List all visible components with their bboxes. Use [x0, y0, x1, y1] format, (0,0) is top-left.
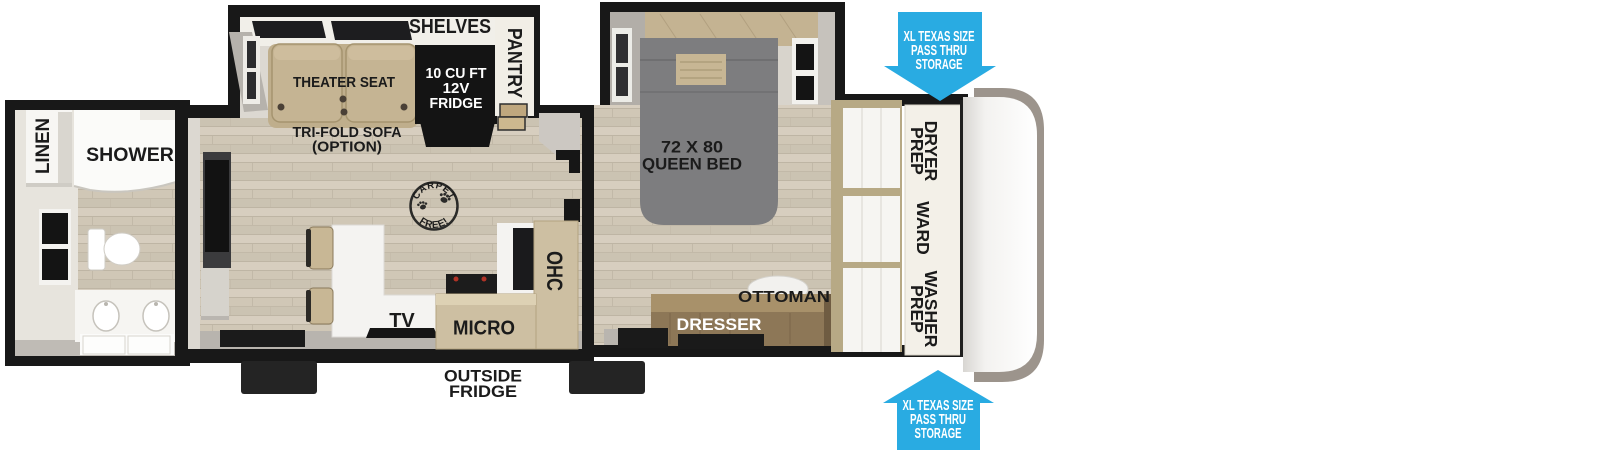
svg-text:DRESSER: DRESSER [677, 315, 762, 334]
svg-text:MICRO: MICRO [453, 318, 515, 340]
svg-text:72 X 80: 72 X 80 [661, 139, 723, 157]
svg-text:PANTRY: PANTRY [503, 28, 525, 99]
svg-text:OHC: OHC [542, 251, 567, 291]
svg-text:FRIDGE: FRIDGE [430, 95, 483, 112]
svg-text:DRYERPREP: DRYERPREP [907, 121, 941, 182]
svg-text:(OPTION): (OPTION) [312, 139, 382, 156]
svg-text:SHELVES: SHELVES [409, 16, 491, 38]
svg-text:LINEN: LINEN [33, 118, 54, 174]
svg-text:WARD: WARD [913, 201, 933, 254]
svg-text:STORAGE: STORAGE [916, 56, 963, 73]
svg-text:SHOWER: SHOWER [86, 144, 174, 166]
svg-text:QUEEN BED: QUEEN BED [642, 156, 742, 174]
svg-text:FRIDGE: FRIDGE [449, 383, 517, 401]
svg-text:STORAGE: STORAGE [915, 425, 962, 442]
svg-text:OTTOMAN: OTTOMAN [738, 289, 830, 306]
svg-text:THEATER SEAT: THEATER SEAT [293, 74, 395, 91]
